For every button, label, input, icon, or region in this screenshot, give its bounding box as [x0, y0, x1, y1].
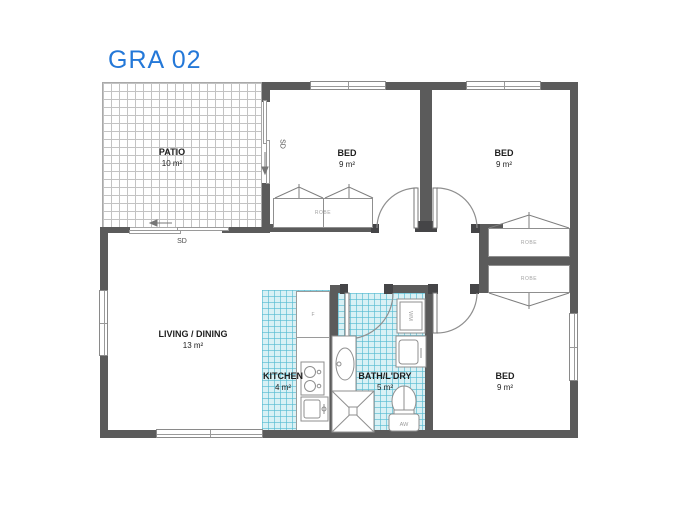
wall-hall-right — [479, 224, 488, 293]
plan-title: GRA 02 — [108, 46, 202, 75]
jamb-bed3-door-left — [428, 284, 438, 294]
jamb-bed2-door — [471, 224, 480, 233]
bath-floor-tiles — [338, 293, 425, 430]
wall-right — [570, 82, 578, 438]
sliding-door-label-living: SD — [177, 238, 187, 245]
door-arc-bed2 — [437, 188, 477, 228]
robe-bed1: ROBE — [273, 198, 373, 228]
room-label-bed-bottom-right: BED 9 m² — [495, 370, 514, 394]
robe-label: ROBE — [521, 276, 537, 282]
sliding-door-living-panel — [129, 230, 181, 234]
room-label-kitchen: KITCHEN 4 m² — [263, 370, 303, 394]
sliding-door-label-bed1: SD — [279, 139, 286, 149]
window-bed1 — [310, 81, 386, 90]
wall-robes-middle — [488, 257, 570, 265]
jamb-bath-door-right — [384, 284, 393, 294]
wall-center-bedrooms — [420, 82, 432, 228]
window-living — [99, 290, 108, 356]
wall-bath-bed3 — [425, 285, 433, 438]
door-arc-bed1 — [377, 188, 417, 228]
robe-bed2: ROBE — [488, 228, 570, 257]
room-label-patio: PATIO 10 m² — [159, 146, 185, 170]
wall-bed1-left-upper — [262, 82, 270, 102]
jamb-bath-door-left — [340, 284, 348, 294]
room-label-bath-laundry: BATH/L'DRY 5 m² — [358, 370, 411, 394]
jamb-center-wall — [415, 221, 437, 232]
sliding-door-bed1-panel — [263, 100, 267, 144]
fridge-label: F — [311, 312, 314, 318]
floor-plan: GRA 02 F ROBE ROBE RO — [0, 0, 690, 517]
room-label-bed-top-middle: BED 9 m² — [337, 147, 356, 171]
wall-living-top-left — [100, 227, 130, 233]
jamb-bed3-door-right — [470, 284, 479, 294]
counter-divider — [297, 337, 329, 338]
robe-divider — [323, 199, 324, 227]
door-leaf-bed3 — [433, 293, 437, 333]
room-label-bed-top-right: BED 9 m² — [494, 147, 513, 171]
sliding-door-living-panel — [177, 227, 229, 231]
door-arc-bed3 — [437, 293, 477, 333]
wall-kitchen-bath — [330, 285, 338, 438]
sliding-door-bed1-panel — [266, 140, 270, 184]
window-bed2 — [466, 81, 541, 90]
robe-label: ROBE — [521, 240, 537, 246]
robe-bed3: ROBE — [488, 265, 570, 293]
window-living-south — [156, 429, 263, 438]
room-label-living-dining: LIVING / DINING 13 m² — [158, 328, 227, 352]
window-bed3 — [569, 313, 578, 381]
